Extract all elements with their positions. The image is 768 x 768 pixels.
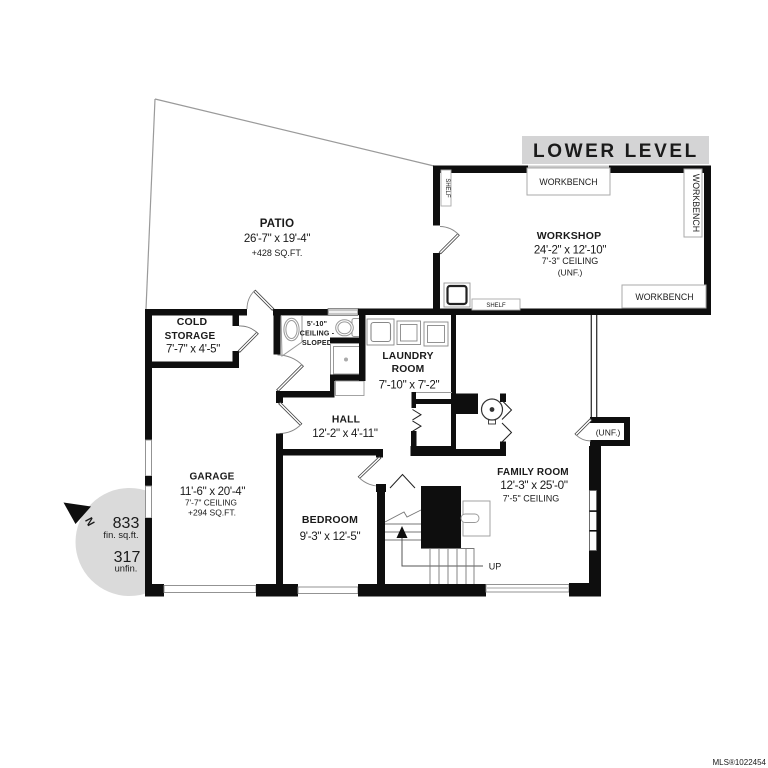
svg-text:CEILING -: CEILING - <box>300 331 335 338</box>
svg-text:9'-3" x 12'-5": 9'-3" x 12'-5" <box>300 530 361 543</box>
svg-text:7'-7" x 4'-5": 7'-7" x 4'-5" <box>166 344 220 356</box>
svg-text:MLS®1022454: MLS®1022454 <box>713 758 767 767</box>
svg-text:WORKBENCH: WORKBENCH <box>691 174 701 232</box>
svg-text:5'-10": 5'-10" <box>307 321 327 328</box>
svg-text:12'-3" x 25'-0": 12'-3" x 25'-0" <box>500 479 568 492</box>
svg-text:fin. sq.ft.: fin. sq.ft. <box>103 530 138 540</box>
svg-text:BEDROOM: BEDROOM <box>302 514 358 526</box>
svg-text:UP: UP <box>489 562 502 572</box>
svg-text:PATIO: PATIO <box>260 218 294 230</box>
svg-text:HALL: HALL <box>332 415 360 426</box>
svg-text:WORKBENCH: WORKBENCH <box>539 177 597 187</box>
svg-text:26'-7" x 19'-4": 26'-7" x 19'-4" <box>244 233 310 245</box>
svg-text:COLD: COLD <box>177 316 208 328</box>
svg-text:STORAGE: STORAGE <box>165 331 216 342</box>
svg-text:FAMILY ROOM: FAMILY ROOM <box>497 467 569 478</box>
svg-text:SHELF: SHELF <box>486 303 506 309</box>
svg-text:(UNF.): (UNF.) <box>596 428 621 438</box>
svg-text:7'-3" CEILING: 7'-3" CEILING <box>542 256 598 266</box>
svg-text:GARAGE: GARAGE <box>189 472 234 483</box>
svg-text:ROOM: ROOM <box>392 364 425 375</box>
svg-text:+294 SQ.FT.: +294 SQ.FT. <box>188 508 236 518</box>
svg-text:SLOPED: SLOPED <box>302 340 332 347</box>
svg-text:(UNF.): (UNF.) <box>558 268 583 278</box>
svg-text:unfin.: unfin. <box>115 564 138 574</box>
svg-text:+428 SQ.FT.: +428 SQ.FT. <box>252 248 303 258</box>
svg-text:LAUNDRY: LAUNDRY <box>382 351 433 362</box>
svg-text:11'-6" x 20'-4": 11'-6" x 20'-4" <box>180 486 246 498</box>
svg-text:7'-5" CEILING: 7'-5" CEILING <box>503 494 559 504</box>
svg-text:SHELF: SHELF <box>444 178 450 198</box>
svg-text:WORKBENCH: WORKBENCH <box>635 292 693 302</box>
svg-text:WORKSHOP: WORKSHOP <box>537 230 602 242</box>
svg-text:7'-7" CEILING: 7'-7" CEILING <box>185 498 237 508</box>
svg-text:12'-2" x 4'-11": 12'-2" x 4'-11" <box>312 428 378 440</box>
svg-text:24'-2" x 12'-10": 24'-2" x 12'-10" <box>534 245 607 257</box>
svg-text:LOWER LEVEL: LOWER LEVEL <box>533 141 699 162</box>
svg-text:7'-10" x 7'-2": 7'-10" x 7'-2" <box>379 379 440 392</box>
